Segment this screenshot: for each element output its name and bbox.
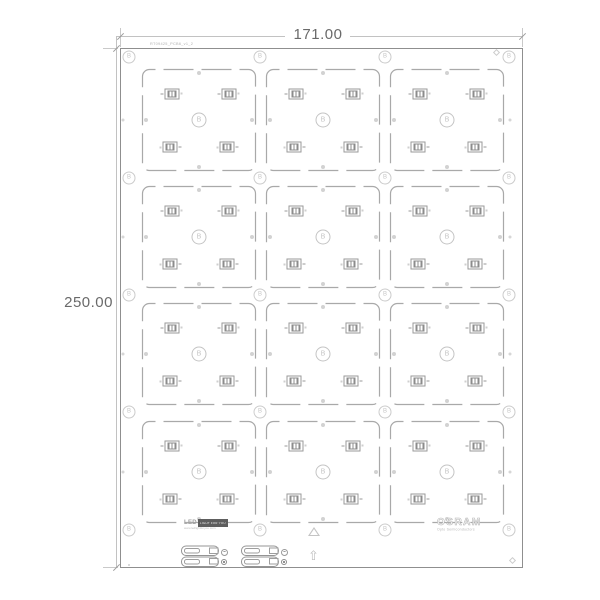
minus-polarity-icon xyxy=(281,549,288,556)
brand-left-block: LIGHT FOR YOU xyxy=(198,519,228,527)
connector-footprint xyxy=(241,545,281,569)
plus-polarity-icon xyxy=(281,559,287,565)
connector-footprint xyxy=(181,545,221,569)
brand-right-subtext: Opto Semiconductors xyxy=(437,528,478,531)
brand-left-text: LED xyxy=(184,520,197,526)
warning-triangle-icon xyxy=(308,527,320,536)
brand-left-subtext: www.ledlightforyou.com xyxy=(184,527,210,530)
connector-outline xyxy=(181,545,221,569)
connector-outline xyxy=(241,545,281,569)
minus-polarity-icon xyxy=(221,549,228,556)
brand-label-left: LED LIGHT FOR YOU www.ledlightforyou.com xyxy=(184,519,236,533)
plus-polarity-icon xyxy=(221,559,227,565)
bottom-components-layer xyxy=(0,0,600,600)
orientation-arrow-icon: ⇧ xyxy=(308,550,319,563)
brand-label-right: OSRAM Opto Semiconductors xyxy=(437,518,507,534)
brand-right-text: OSRAM xyxy=(437,518,507,528)
drawing-canvas: 171.00 250.00 RT09425_PCB6_v1_2 BBBBBBBB… xyxy=(0,0,600,600)
